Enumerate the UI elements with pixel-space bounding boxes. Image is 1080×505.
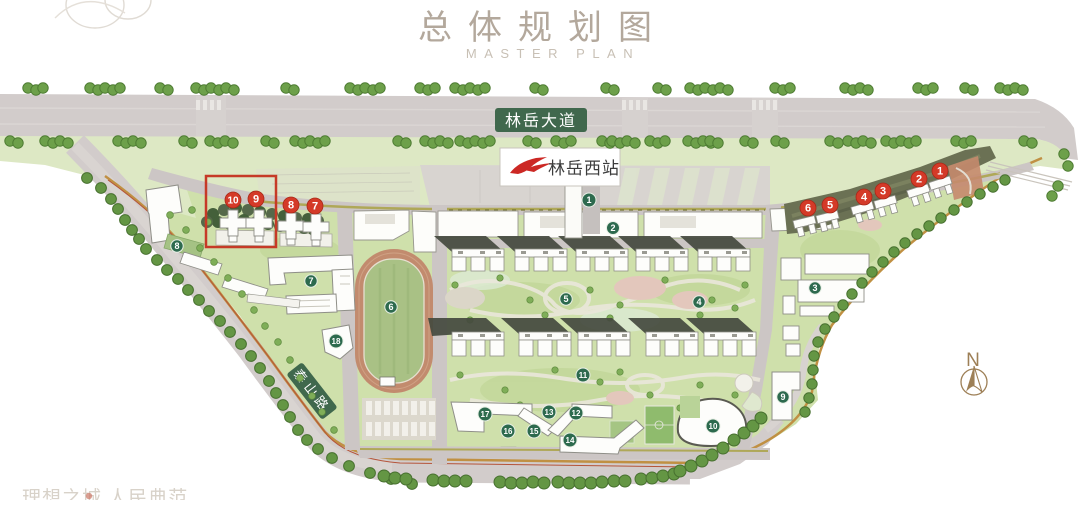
svg-text:15: 15 bbox=[530, 427, 539, 436]
svg-text:17: 17 bbox=[481, 410, 490, 419]
svg-text:7: 7 bbox=[312, 201, 318, 213]
svg-text:5: 5 bbox=[563, 294, 568, 304]
svg-text:8: 8 bbox=[288, 200, 294, 212]
svg-text:N: N bbox=[966, 350, 980, 371]
svg-text:理想之城 人民典范: 理想之城 人民典范 bbox=[22, 487, 188, 500]
svg-text:林岳大道: 林岳大道 bbox=[505, 112, 577, 130]
svg-text:MASTER PLAN: MASTER PLAN bbox=[466, 46, 640, 61]
svg-text:总体规划图: 总体规划图 bbox=[418, 9, 668, 47]
svg-text:16: 16 bbox=[504, 427, 513, 436]
svg-text:1: 1 bbox=[586, 195, 591, 205]
svg-text:6: 6 bbox=[805, 203, 811, 215]
svg-text:3: 3 bbox=[812, 283, 817, 293]
svg-text:4: 4 bbox=[696, 297, 701, 307]
svg-text:14: 14 bbox=[566, 436, 575, 445]
svg-text:1: 1 bbox=[937, 166, 943, 178]
svg-text:9: 9 bbox=[253, 194, 259, 206]
svg-text:2: 2 bbox=[610, 223, 615, 233]
svg-text:5: 5 bbox=[827, 200, 833, 212]
svg-text:6: 6 bbox=[388, 302, 393, 312]
svg-text:10: 10 bbox=[227, 196, 239, 207]
svg-text:12: 12 bbox=[572, 409, 581, 418]
svg-text:8: 8 bbox=[174, 241, 179, 251]
svg-text:3: 3 bbox=[880, 186, 886, 198]
svg-text:7: 7 bbox=[308, 276, 313, 286]
svg-text:9: 9 bbox=[780, 392, 785, 402]
svg-text:林岳西站: 林岳西站 bbox=[548, 159, 620, 178]
svg-text:10: 10 bbox=[709, 422, 718, 431]
svg-text:11: 11 bbox=[579, 371, 588, 380]
svg-text:2: 2 bbox=[916, 174, 922, 186]
svg-text:13: 13 bbox=[545, 408, 554, 417]
svg-text:18: 18 bbox=[332, 337, 341, 346]
svg-text:4: 4 bbox=[861, 192, 868, 204]
